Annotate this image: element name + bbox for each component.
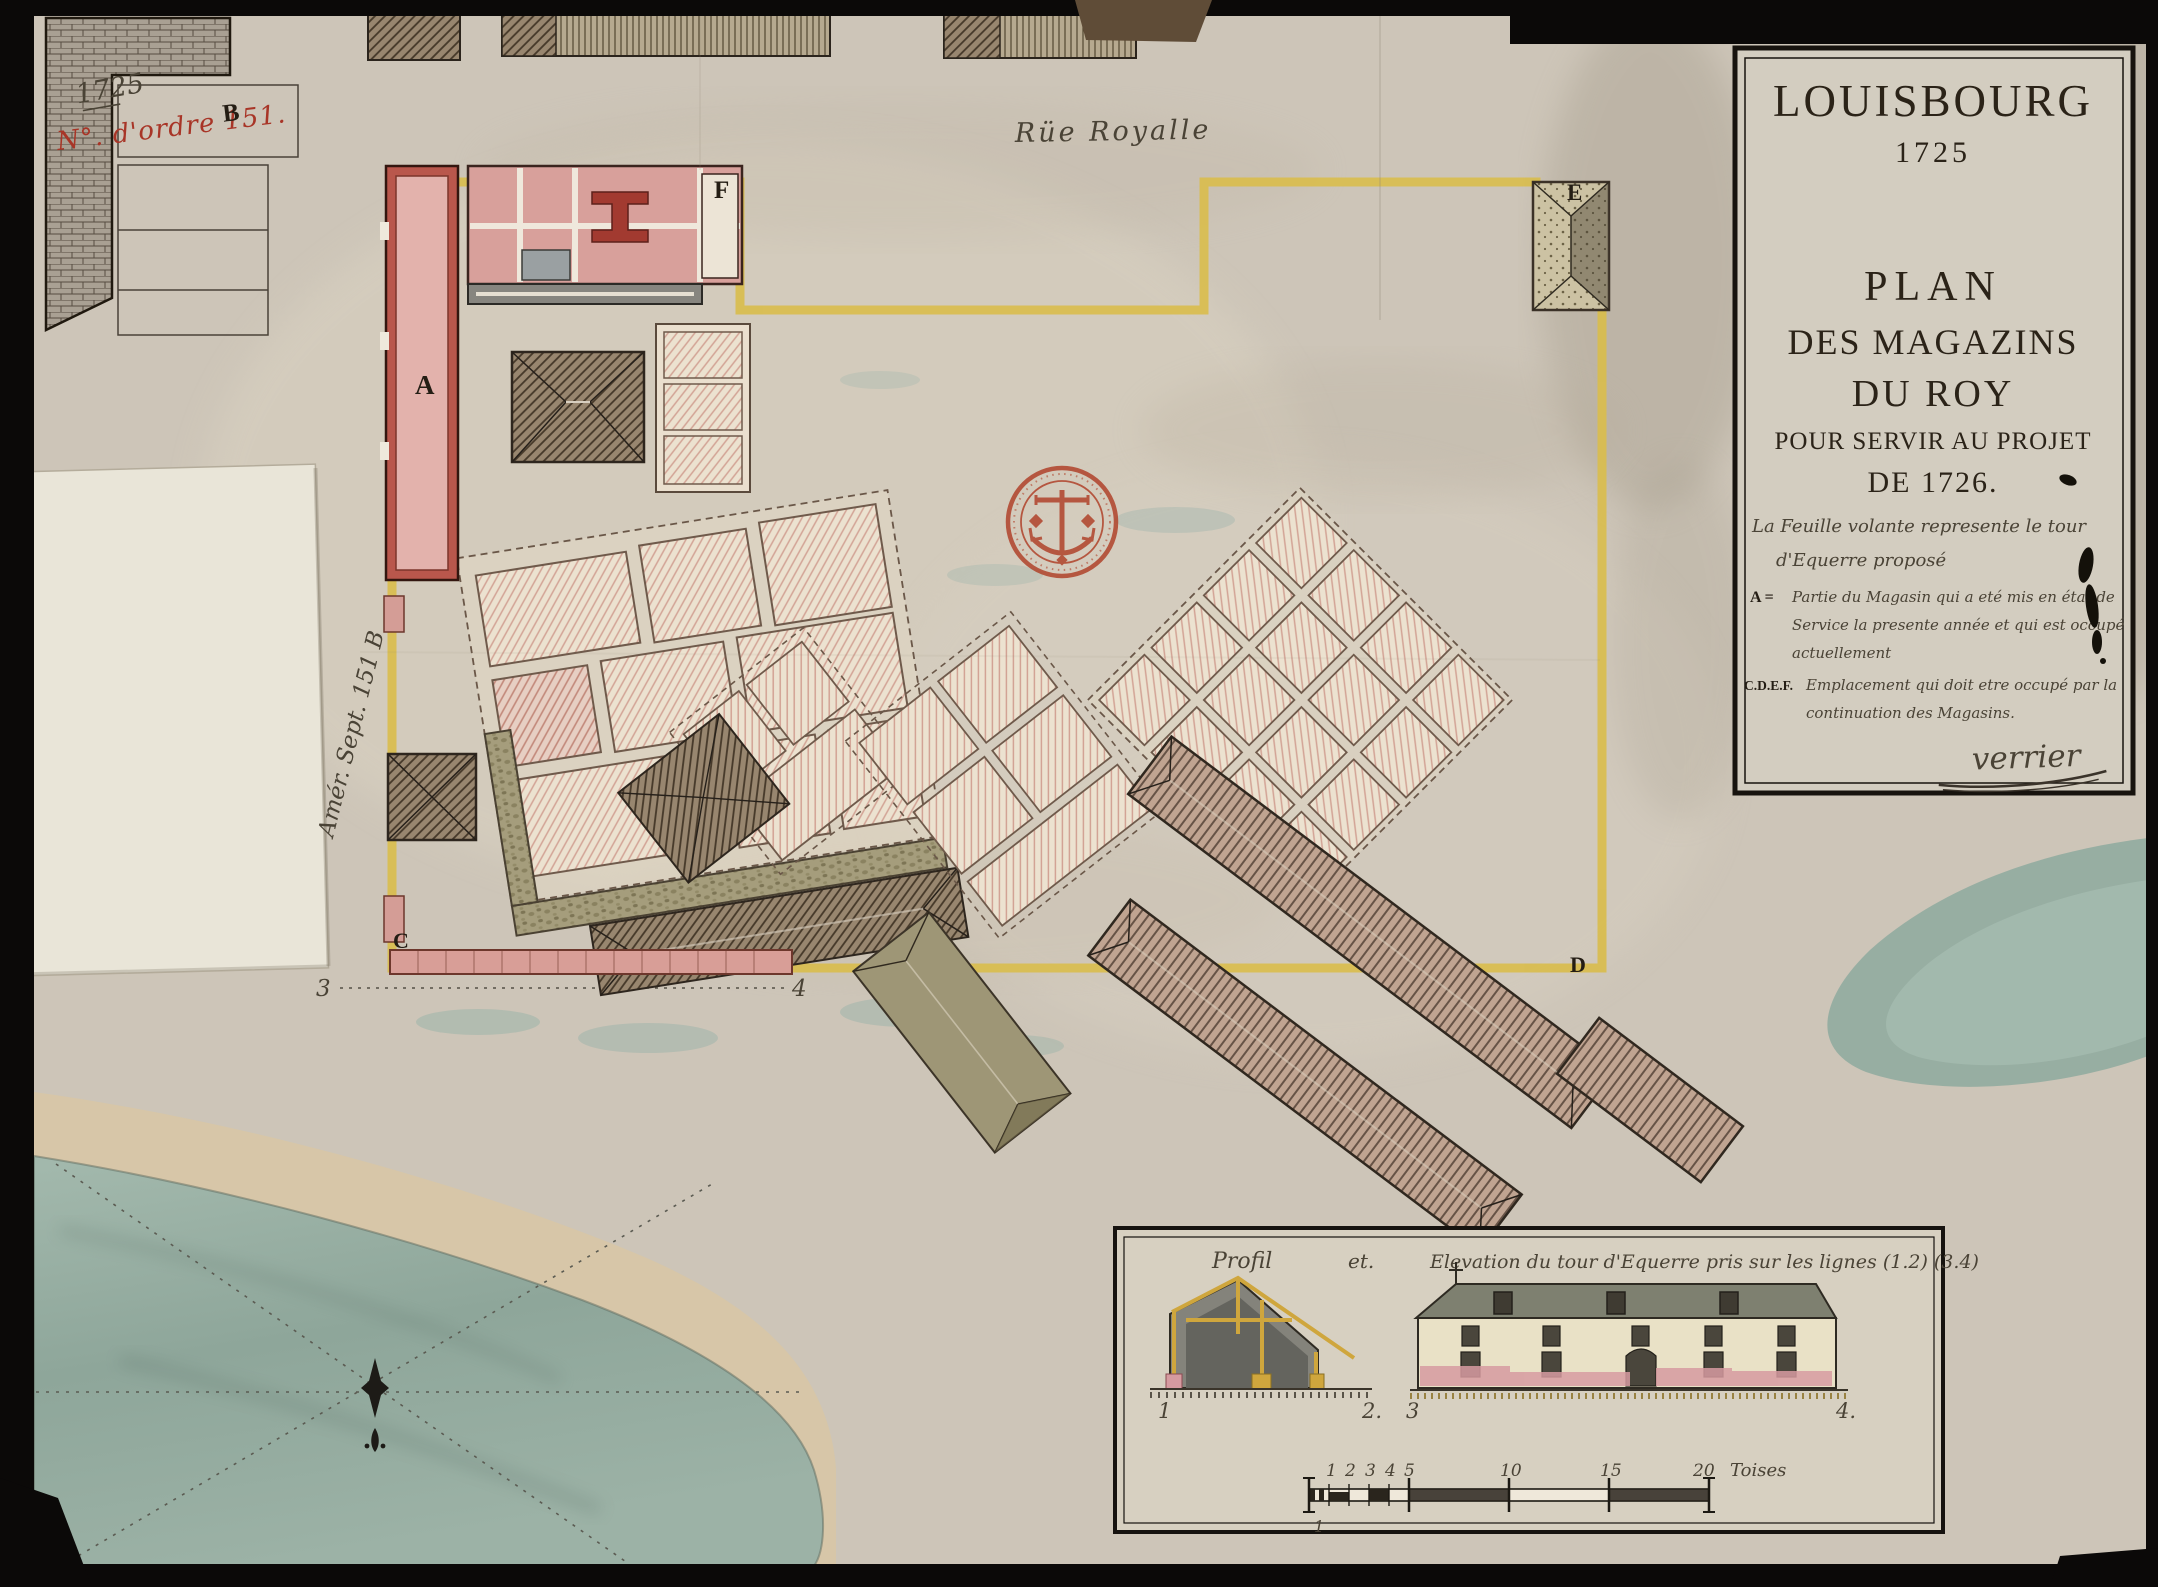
svg-text:A =: A = — [1750, 589, 1774, 606]
elev-marker-4: 4. — [1835, 1399, 1856, 1423]
svg-text:continuation des Magasins.: continuation des Magasins. — [1806, 704, 2015, 722]
cloud-wash-2 — [1140, 360, 1620, 500]
svg-text:Service la presente année et q: Service la presente année et qui est occ… — [1792, 616, 2124, 634]
photo-edge-stain — [1075, 0, 1212, 42]
street-label: Rüe Royalle — [1014, 115, 1212, 149]
cartouche-title-2: DES MAGAZINS — [1787, 322, 2078, 362]
paper-shade-wash-2 — [1610, 460, 1750, 820]
hip-roof-building-c — [388, 754, 476, 840]
inset-panel: Profil et. Elevation du tour d'Equerre p… — [1115, 1228, 1979, 1536]
loose-overlay-sheet — [15, 464, 328, 976]
cartouche-note-1: La Feuille volante represente le tour — [1751, 516, 2087, 537]
section-marker-4: 4 — [791, 976, 807, 1002]
cartouche-year: 1725 — [1895, 136, 1971, 169]
scale-tick-20: 20 — [1692, 1461, 1715, 1481]
arched-door — [1626, 1349, 1656, 1386]
scale-unit: Toises — [1730, 1460, 1786, 1481]
order-letter: B — [221, 99, 241, 128]
scale-tick-2: 2 — [1344, 1461, 1356, 1481]
svg-text:Partie du Magasin qui a eté mi: Partie du Magasin qui a eté mis en état … — [1791, 588, 2115, 606]
scale-tick-15: 15 — [1600, 1461, 1622, 1481]
cartouche-title-5: DE 1726. — [1868, 466, 1999, 499]
scale-sub-1: 1 — [1314, 1517, 1324, 1536]
scale-tick-5: 5 — [1404, 1461, 1415, 1481]
svg-text:actuellement: actuellement — [1792, 644, 1892, 662]
caption-et: et. — [1348, 1249, 1374, 1273]
elev-marker-3: 3 — [1406, 1399, 1419, 1423]
svg-text:verrier: verrier — [1971, 738, 2083, 778]
building-label-a: A — [415, 370, 435, 400]
cartouche-title-3: DU ROY — [1852, 373, 2015, 415]
title-cartouche: LOUISBOURG 1725 PLAN DES MAGAZINS DU ROY… — [1735, 48, 2133, 793]
cartouche-title-1: PLAN — [1864, 264, 2002, 310]
scale-tick-3: 3 — [1365, 1461, 1376, 1481]
building-label-d: D — [1570, 952, 1586, 977]
elev-marker-1: 1 — [1158, 1399, 1171, 1423]
scale-tick-10: 10 — [1500, 1461, 1522, 1481]
wet-spot-3 — [840, 371, 920, 389]
building-f-complex — [468, 166, 742, 304]
cartouche-place: LOUISBOURG — [1773, 76, 2093, 126]
wet-spot-2 — [947, 564, 1043, 586]
room-block — [656, 324, 750, 492]
scale-tick-1: 1 — [1326, 1461, 1337, 1481]
elev-marker-2: 2. — [1361, 1399, 1382, 1423]
caption-elevation: Elevation du tour d'Equerre pris sur les… — [1429, 1251, 1979, 1273]
svg-text:Emplacement qui doit etre occu: Emplacement qui doit etre occupé par la — [1805, 676, 2117, 694]
pond-2 — [578, 1023, 718, 1053]
svg-text:C.D.E.F.: C.D.E.F. — [1744, 678, 1793, 693]
section-marker-3: 3 — [316, 976, 331, 1002]
plan-drawing: Rüe Royalle — [0, 0, 2158, 1587]
scale-tick-4: 4 — [1384, 1461, 1396, 1481]
wet-spot — [1115, 507, 1235, 533]
building-label-f: F — [714, 177, 729, 204]
building-label-e: E — [1567, 180, 1582, 205]
cartouche-title-4: POUR SERVIR AU PROJET — [1775, 428, 2092, 455]
building-label-c: C — [393, 928, 409, 953]
caption-profil: Profil — [1211, 1249, 1272, 1274]
cartouche-note-2: d'Equerre proposé — [1776, 550, 1947, 571]
pond — [416, 1009, 540, 1035]
pavilion-roof — [512, 352, 644, 462]
scanned-plan-photo: Rüe Royalle — [0, 0, 2158, 1587]
